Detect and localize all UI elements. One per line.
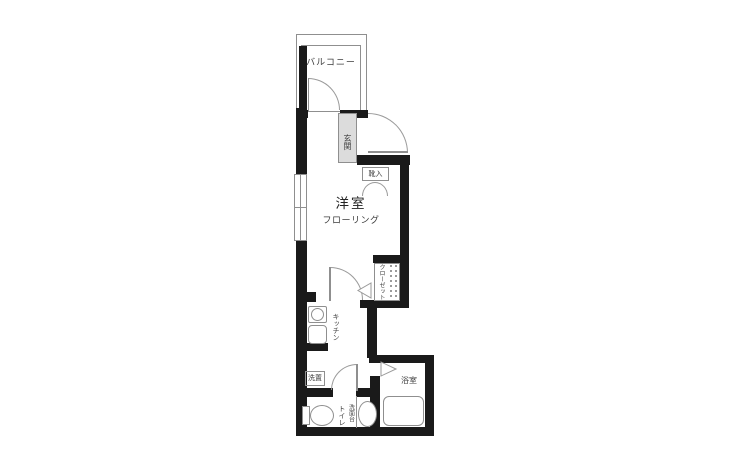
floor-plan: バルコニー 玄関 靴入 洋室 フローリング クローゼット キ — [0, 0, 730, 470]
kitchen-sink-bowl-icon — [311, 308, 324, 321]
wall-left-lower — [296, 241, 307, 431]
entrance-door-leaf — [368, 151, 408, 153]
wall-left-upper — [296, 108, 307, 176]
balcony-door-leaf — [308, 78, 309, 111]
wall-corridor-bottom-right — [356, 388, 371, 397]
washroom-door-leaf — [356, 364, 358, 391]
bathtub-icon — [383, 396, 424, 426]
bathroom-label: 浴室 — [394, 375, 424, 386]
window-tick — [295, 207, 306, 208]
shoe-cabinet-door-arc-left — [362, 182, 375, 196]
wall-right-upper — [400, 157, 409, 263]
balcony-label: バルコニー — [299, 57, 363, 69]
washer-space-label: 洗置 — [305, 373, 325, 384]
room-door-leaf — [329, 267, 331, 301]
closet-door-triangle — [357, 282, 373, 299]
kitchen-counter-unit — [308, 325, 327, 344]
washroom-door-arc — [331, 364, 357, 390]
entrance-door-arc — [368, 113, 408, 153]
toilet-bowl-icon — [310, 405, 334, 426]
wall-kitchen-stub — [307, 343, 328, 351]
closet-hatch-pattern — [389, 265, 399, 299]
wall-bath-top — [369, 355, 434, 363]
wall-bottom — [296, 427, 434, 436]
closet-label: クローゼット — [376, 264, 386, 299]
wall-corridor-right — [367, 306, 377, 358]
washroom-divider-line — [356, 396, 357, 428]
entrance-label: 玄関 — [340, 121, 354, 163]
wall-closet-top — [373, 255, 400, 263]
wall-bath-right — [425, 363, 434, 436]
shoe-cabinet-door-arc-right — [375, 182, 388, 196]
wall-balcony-left — [299, 46, 307, 112]
toilet-tank-icon — [302, 406, 310, 425]
kitchen-label: キッチン — [330, 309, 341, 345]
washstand-label: 洗面台 — [346, 400, 355, 426]
western-room-label: 洋室 — [312, 197, 390, 213]
shoe-cabinet-label: 靴入 — [362, 168, 389, 180]
washbasin-icon — [358, 401, 377, 427]
flooring-label: フローリング — [306, 216, 396, 227]
